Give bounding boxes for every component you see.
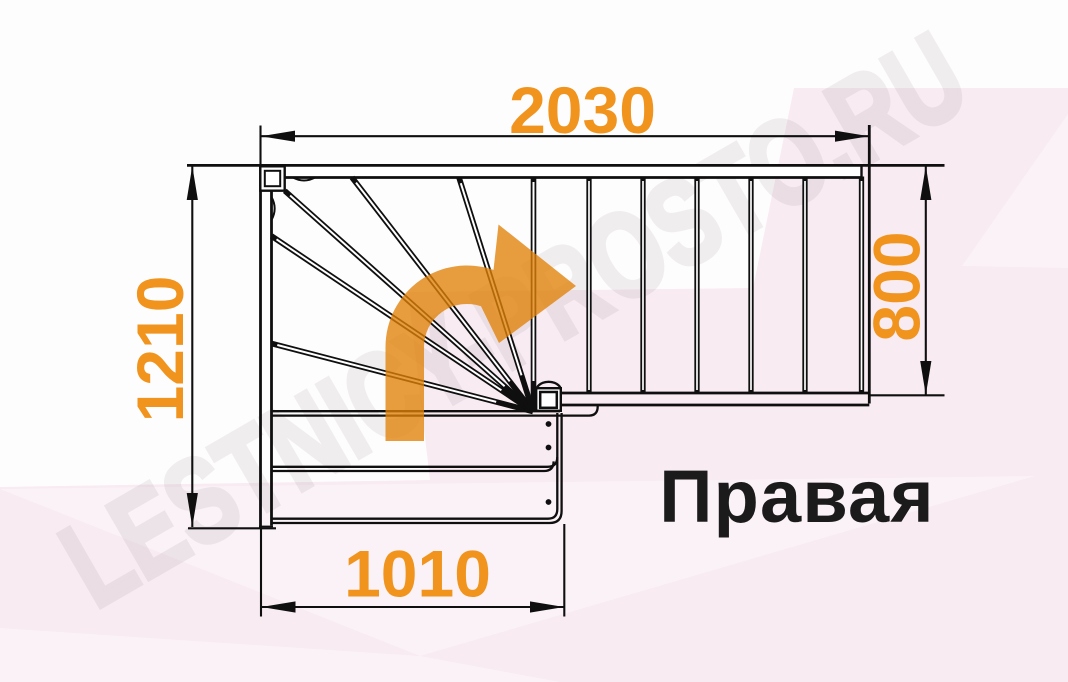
svg-text:800: 800 [860, 231, 934, 341]
svg-text:1010: 1010 [344, 537, 491, 611]
svg-text:Правая: Правая [659, 455, 935, 538]
svg-text:2030: 2030 [509, 73, 656, 147]
svg-text:1210: 1210 [123, 276, 197, 423]
